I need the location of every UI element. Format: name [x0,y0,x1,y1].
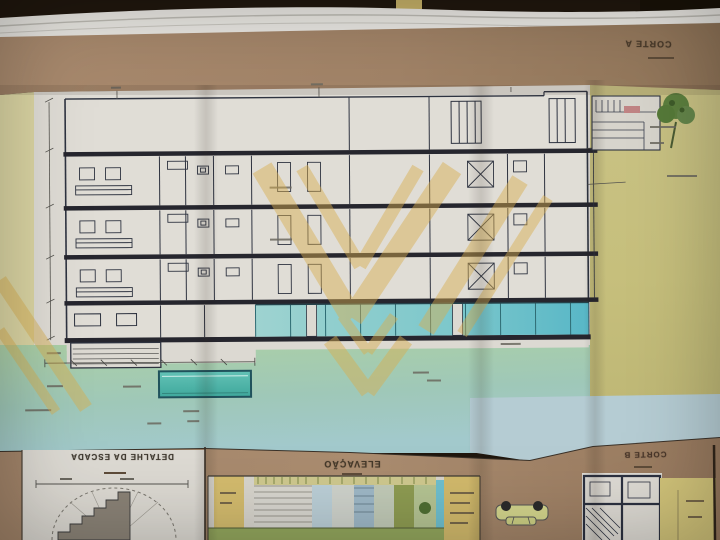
label-elevacao: ELEVAÇÃO [304,459,400,469]
label-corte-b: CORTE B [616,449,674,459]
table-object [396,0,422,9]
basement-block [71,342,161,368]
label-detalhe-escada: DETALHE DA ESCADA [46,452,198,461]
blueprint-photo: CORTE A DETALHE DA ESCADA ELEVAÇÃO CORTE… [0,0,720,540]
elevation-drawing [208,476,480,540]
label-corte-a: CORTE A [606,38,690,49]
